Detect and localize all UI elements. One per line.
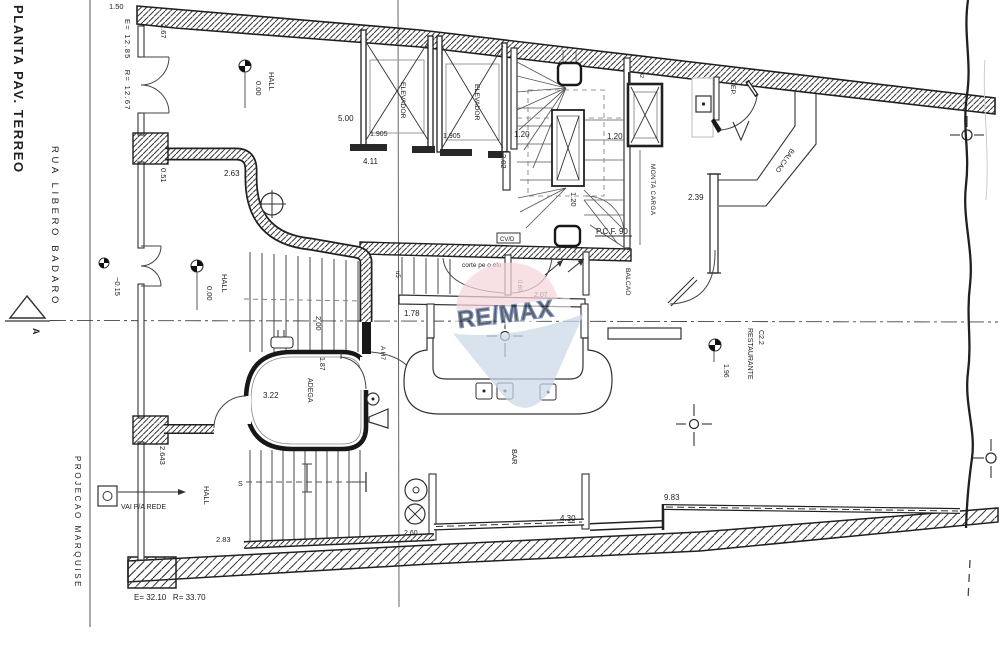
svg-text:2.83: 2.83	[216, 535, 231, 544]
svg-text:1.78: 1.78	[404, 309, 420, 318]
svg-text:MONTA CARGA: MONTA CARGA	[649, 164, 656, 216]
svg-text:0.00: 0.00	[205, 286, 214, 301]
svg-text:1.905: 1.905	[443, 133, 461, 140]
svg-text:ADEGA: ADEGA	[306, 378, 313, 403]
svg-text:2.67: 2.67	[159, 24, 168, 39]
svg-text:PROJECAO MARQUISE: PROJECAO MARQUISE	[73, 456, 82, 589]
svg-text:2.39: 2.39	[688, 193, 704, 202]
svg-text:ELEVADOR: ELEVADOR	[399, 82, 406, 119]
svg-text:PLANTA PAV. TERREO: PLANTA PAV. TERREO	[11, 5, 26, 174]
svg-text:1.87: 1.87	[318, 357, 325, 371]
svg-text:5.00: 5.00	[338, 114, 354, 123]
svg-text:0.00: 0.00	[254, 81, 263, 96]
svg-text:2.63: 2.63	[224, 169, 240, 178]
svg-text:S: S	[238, 481, 243, 488]
svg-text:1.20: 1.20	[607, 132, 623, 141]
svg-text:4.11: 4.11	[363, 157, 379, 166]
svg-text:HALL: HALL	[267, 72, 276, 91]
svg-text:RESTAURANTE: RESTAURANTE	[746, 328, 753, 380]
svg-text:1.20: 1.20	[514, 130, 530, 139]
svg-text:ELEVADOR: ELEVADOR	[473, 84, 480, 121]
svg-text:0.51: 0.51	[159, 168, 168, 183]
svg-text:1.905: 1.905	[370, 131, 388, 138]
svg-text:VAI P/A REDE: VAI P/A REDE	[121, 504, 166, 511]
svg-text:E= 32.10 R= 33.70: E= 32.10 R= 33.70	[134, 593, 206, 602]
svg-text:−0.15: −0.15	[113, 277, 122, 296]
svg-text:4.30: 4.30	[560, 514, 576, 523]
svg-text:DEP.: DEP.	[729, 80, 736, 95]
svg-text:A: A	[31, 328, 41, 335]
svg-text:E= 12.85 R= 12.67: E= 12.85 R= 12.67	[123, 19, 132, 111]
svg-text:3.22: 3.22	[263, 391, 279, 400]
svg-text:2.02: 2.02	[499, 154, 508, 169]
svg-text:P.C.F. 90: P.C.F. 90	[596, 227, 628, 236]
svg-text:C2.2: C2.2	[757, 330, 764, 345]
svg-text:BAR: BAR	[510, 449, 519, 465]
svg-text:2.60: 2.60	[404, 530, 418, 537]
svg-text:u5: u5	[394, 271, 400, 278]
svg-text:2.00: 2.00	[314, 316, 323, 331]
svg-text:HALL: HALL	[220, 274, 229, 293]
svg-text:42: 42	[638, 72, 644, 78]
svg-text:1.20: 1.20	[569, 192, 578, 207]
svg-text:9.83: 9.83	[664, 493, 680, 502]
svg-text:HALL: HALL	[202, 486, 211, 505]
svg-text:2.643: 2.643	[158, 446, 167, 465]
svg-text:CV/D: CV/D	[500, 237, 515, 243]
svg-text:BALCAO: BALCAO	[624, 268, 631, 296]
svg-text:1.50: 1.50	[109, 2, 124, 11]
svg-text:1.96: 1.96	[722, 364, 729, 378]
svg-text:RUA LIBERO BADARO: RUA LIBERO BADARO	[49, 146, 60, 307]
